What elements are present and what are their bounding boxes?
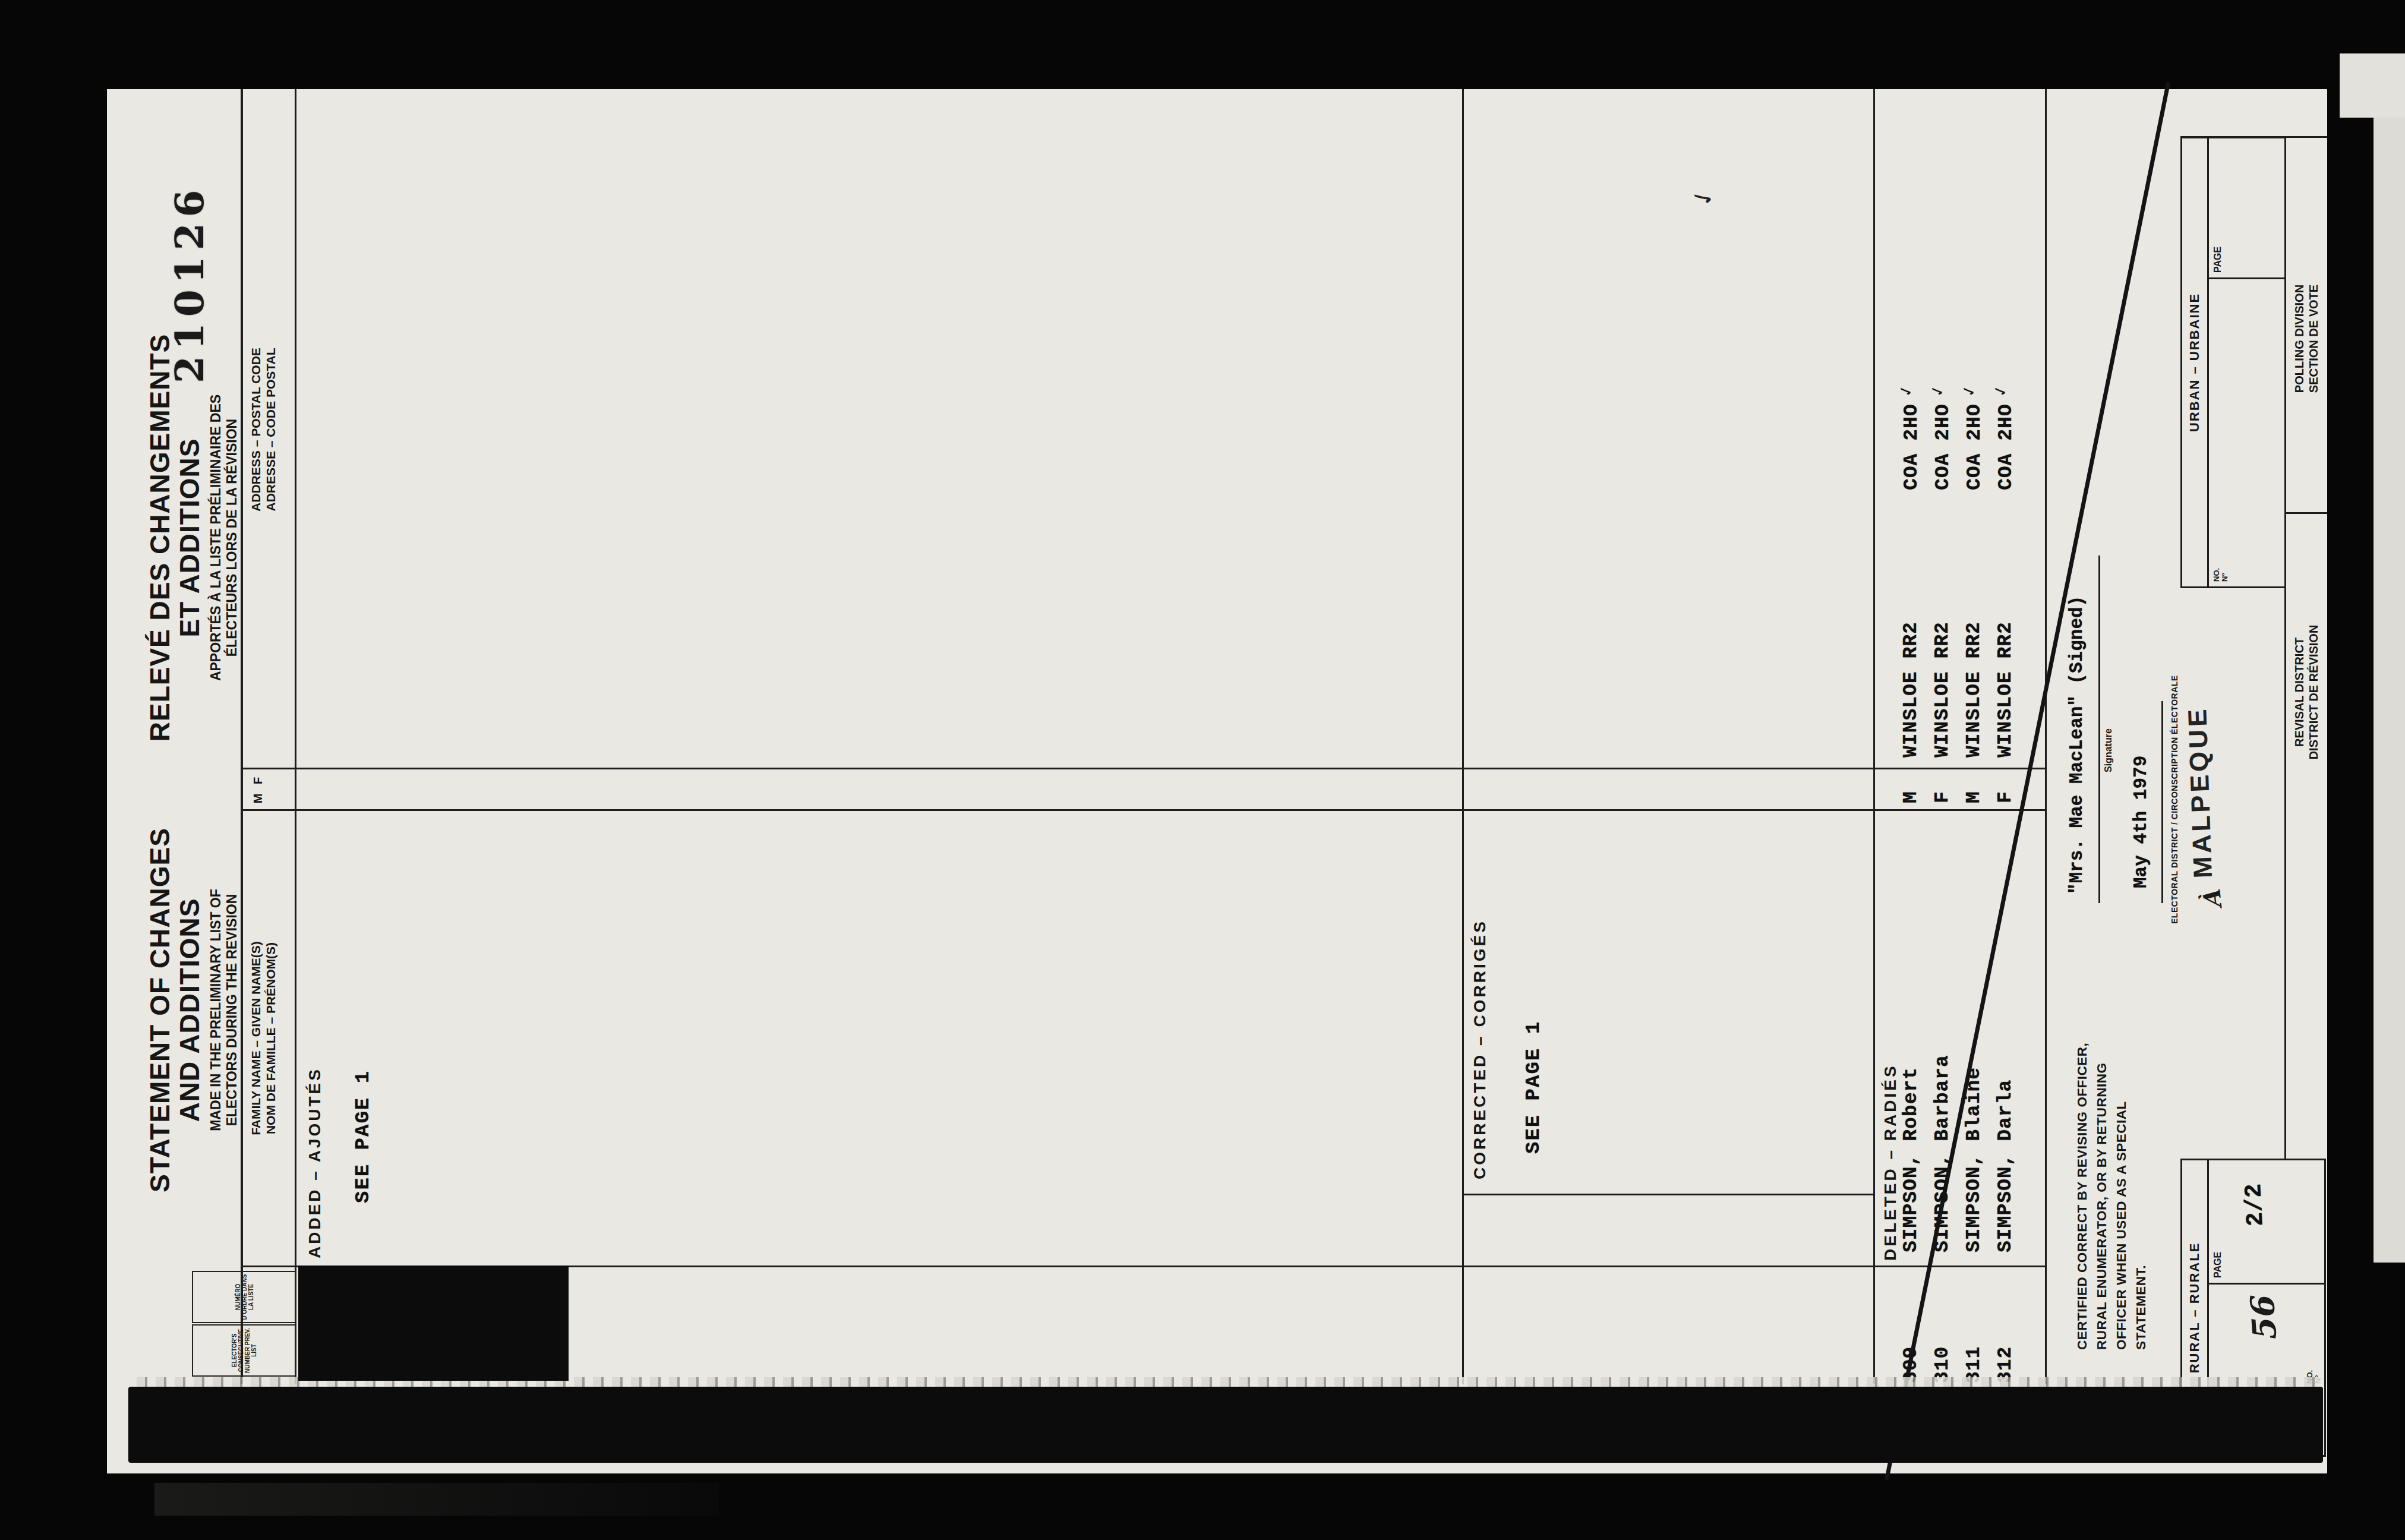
title-english: STATEMENT OF CHANGES AND ADDITIONS MADE … (145, 755, 240, 1266)
section-label-added: ADDED – AJOUTÉS (305, 1067, 324, 1258)
rural-page-label: PAGE (2213, 1252, 2223, 1278)
row-address: WINSLOE RR2 (1963, 621, 1985, 758)
number-column-header-fr: NUMÉRO D'ORDRE DANS LA LISTE (192, 1271, 296, 1323)
date-value: May 4th 1979 (2131, 756, 2151, 888)
page-edge-strip (128, 1387, 2323, 1463)
title-en-sub2: ELECTORS DURING THE REVISION (224, 755, 240, 1266)
section-rule-deleted (1873, 89, 1875, 1384)
district-handwritten-prefix: À (2198, 889, 2227, 911)
title-fr-line1: RELEVÉ DES CHANGEMENTS (145, 324, 175, 752)
title-en-sub1: MADE IN THE PRELIMINARY LIST OF (208, 755, 224, 1266)
postal-code: COA 2HO (1964, 403, 1986, 490)
row-name: SIMPSON, Robert (1900, 1067, 1922, 1252)
date-underline (2161, 701, 2163, 903)
pen-tick-mark: ✓ (1686, 182, 1721, 213)
revisal-district-fr: DISTRICT DE RÉVISION (2306, 526, 2321, 859)
table-header-rule (295, 89, 296, 1384)
checkmark-icon: ✓ (1894, 383, 1918, 399)
corrected-subcolumn-rule (1462, 1194, 1874, 1195)
scanner-background: STATEMENT OF CHANGES AND ADDITIONS MADE … (0, 0, 2405, 1540)
adjacent-page-edge (2374, 53, 2405, 1263)
certification-line: OFFICER WHEN USED AS A SPECIAL (2112, 1043, 2131, 1350)
polling-division-en: POLLING DIVISION (2292, 172, 2306, 505)
section-rule-corrected (1462, 89, 1464, 1384)
number-column-header-en: ELECTOR'S CONSECUTIVE NUMBER PREV. LIST (192, 1324, 296, 1377)
row-sex: M (1900, 791, 1922, 803)
urban-no-cell: NO. N° (2209, 277, 2286, 586)
section-label-deleted: DELETED – RADIÉS (1881, 1064, 1900, 1261)
signature-value: "Mrs. Mae MacLean" (Signed) (2066, 596, 2087, 894)
rural-page-cell: PAGE 2/2 (2209, 1160, 2326, 1283)
footer-strip-rule (2284, 137, 2286, 1159)
sex-header-m: M (251, 794, 264, 804)
urban-page-label: PAGE (2213, 247, 2223, 273)
document-number-stamp: 210126 (166, 184, 213, 383)
added-note: SEE PAGE 1 (352, 1070, 374, 1203)
urban-no-label-fr: N° (2221, 568, 2229, 582)
title-fr-line2: ET ADDITIONS (175, 324, 204, 752)
row-sex: F (1994, 791, 2016, 803)
polling-division-fr: SECTION DE VOTE (2306, 172, 2321, 505)
title-french: RELEVÉ DES CHANGEMENTS ET ADDITIONS APPO… (145, 324, 240, 752)
row-postal: COA 2HO✓ (1963, 384, 1986, 490)
column-rule-sex-left (241, 809, 2047, 811)
district-stamp: MALPEQUE (2182, 706, 2218, 879)
section-label-corrected: CORRECTED – CORRIGÉS (1470, 919, 1489, 1179)
scan-smudge (154, 1483, 719, 1516)
redaction-block (298, 1266, 569, 1381)
footer-strip-divider (2286, 512, 2327, 514)
name-header-en: FAMILY NAME – GIVEN NAME(S) (248, 814, 263, 1263)
rural-page-value: 2/2 (2240, 1183, 2270, 1227)
postal-code: COA 2HO (1932, 403, 1954, 490)
row-address: WINSLOE RR2 (1931, 621, 1953, 758)
column-rule-sex-right (241, 768, 2047, 769)
table-row: 310 SIMPSON, Barbara F WINSLOE RR2 COA 2… (1931, 89, 1961, 1473)
signature-label: Signature (2103, 728, 2114, 772)
table-top-border (241, 89, 243, 1384)
certification-line: CERTIFIED CORRECT BY REVISING OFFICER, (2072, 1043, 2092, 1350)
certification-line: STATEMENT. (2131, 1043, 2151, 1350)
table-bottom-border (2045, 89, 2047, 1384)
name-header-fr: NOM DE FAMILLE – PRÉNOM(S) (263, 814, 278, 1263)
revisal-district-en: REVISAL DISTRICT (2292, 526, 2306, 859)
sex-column-header: M F (251, 768, 265, 813)
document-page: STATEMENT OF CHANGES AND ADDITIONS MADE … (107, 89, 2327, 1473)
row-sex: F (1931, 791, 1953, 803)
table-row: 309 SIMPSON, Robert M WINSLOE RR2 COA 2H… (1900, 89, 1930, 1473)
certification-block: CERTIFIED CORRECT BY REVISING OFFICER, R… (2072, 1043, 2151, 1350)
postal-code: COA 2HO (1995, 403, 2017, 490)
urban-no-label-en: NO. (2213, 568, 2221, 582)
name-column-header: FAMILY NAME – GIVEN NAME(S) NOM DE FAMIL… (248, 814, 278, 1263)
footer-strip-right-edge (2180, 136, 2327, 138)
adjacent-page-corner (2340, 53, 2405, 118)
title-fr-sub2: ÉLECTEURS LORS DE LA RÉVISION (224, 324, 240, 752)
address-header-en: ADDRESS – POSTAL CODE (248, 94, 263, 765)
title-en-line1: STATEMENT OF CHANGES (145, 755, 175, 1266)
urban-box: URBAN – URBAINE NO. N° PAGE (2180, 137, 2286, 588)
statement-form: STATEMENT OF CHANGES AND ADDITIONS MADE … (107, 89, 2327, 1473)
rural-no-value: 56 (2243, 1296, 2284, 1343)
certification-line: RURAL ENUMERATOR, OR BY RETURNING (2092, 1043, 2112, 1350)
title-en-line2: AND ADDITIONS (175, 755, 204, 1266)
sex-header-f: F (251, 777, 264, 784)
polling-division-header: POLLING DIVISION SECTION DE VOTE (2292, 172, 2321, 505)
table-row: 311 SIMPSON, Blaine M WINSLOE RR2 COA 2H… (1963, 89, 1993, 1473)
row-sex: M (1963, 791, 1985, 803)
signature-underline (2098, 556, 2100, 903)
title-fr-sub1: APPORTÉS À LA LISTE PRÉLIMINAIRE DES (208, 324, 224, 752)
address-header-fr: ADRESSE – CODE POSTAL (263, 94, 278, 765)
row-postal: COA 2HO✓ (1994, 384, 2017, 490)
revisal-district-header: REVISAL DISTRICT DISTRICT DE RÉVISION (2292, 526, 2321, 859)
urban-page-cell: PAGE (2209, 138, 2286, 277)
row-address: WINSLOE RR2 (1994, 621, 2016, 758)
electoral-district-label: ELECTORAL DISTRICT / CIRCONSCRIPTION ÉLE… (2170, 675, 2179, 924)
table-row: 312 SIMPSON, Darla F WINSLOE RR2 COA 2HO… (1994, 89, 2024, 1473)
corrected-note: SEE PAGE 1 (1522, 1021, 1545, 1154)
postal-code: COA 2HO (1901, 403, 1923, 490)
row-name: SIMPSON, Darla (1994, 1080, 2016, 1252)
address-column-header: ADDRESS – POSTAL CODE ADRESSE – CODE POS… (248, 94, 278, 765)
row-postal: COA 2HO✓ (1931, 384, 1954, 490)
row-address: WINSLOE RR2 (1900, 621, 1922, 758)
urban-label: URBAN – URBAINE (2182, 138, 2209, 586)
row-postal: COA 2HO✓ (1900, 384, 1923, 490)
